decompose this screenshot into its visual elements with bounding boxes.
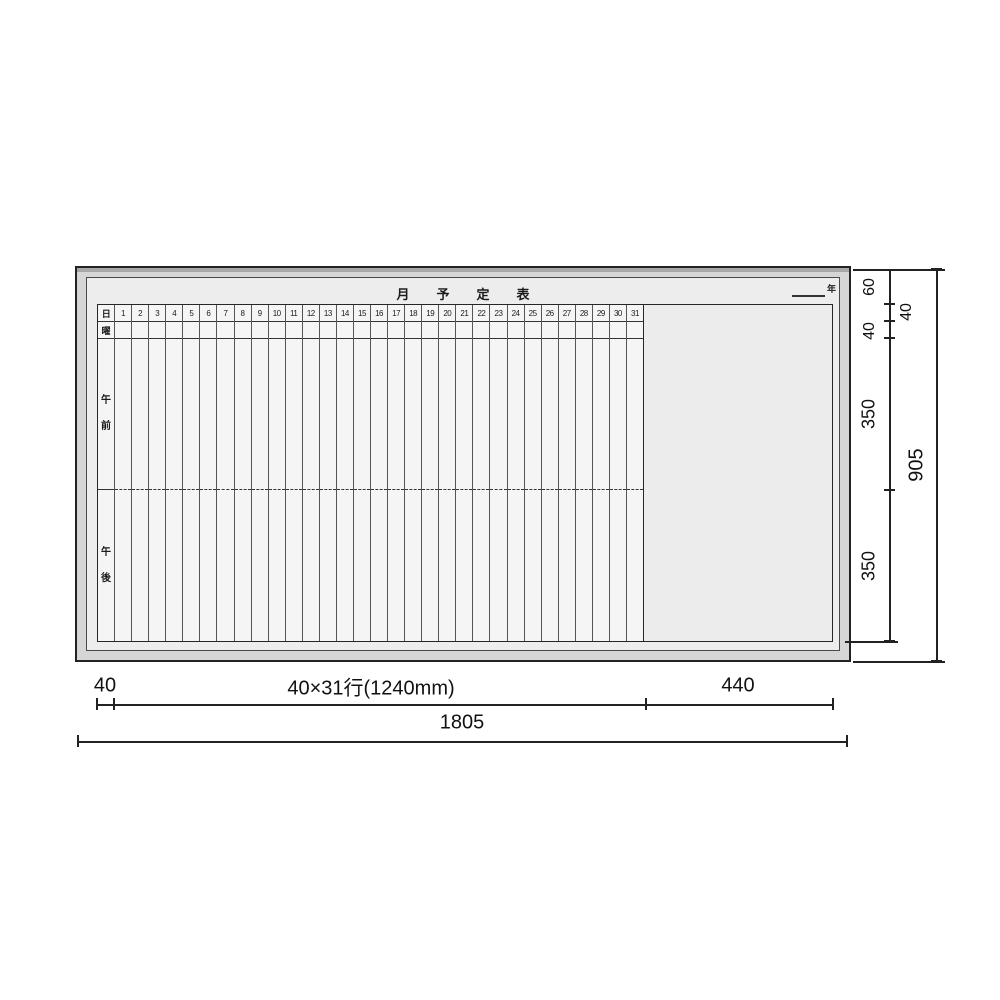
weekday-cell xyxy=(473,322,489,339)
weekday-cell xyxy=(525,322,541,339)
weekday-label-cell: 曜 xyxy=(98,322,114,339)
weekday-cell xyxy=(320,322,336,339)
afternoon-cell xyxy=(166,490,182,641)
dim-label-total-height: 905 xyxy=(906,448,929,481)
corner-header-cell: 日 xyxy=(98,305,114,322)
weekday-cell xyxy=(559,322,575,339)
dim-line-right-inner xyxy=(889,270,891,642)
morning-label-cell: 午 前 xyxy=(98,339,114,490)
weekday-cell xyxy=(217,322,233,339)
morning-cell xyxy=(525,339,541,490)
morning-cell xyxy=(405,339,421,490)
afternoon-cell xyxy=(132,490,148,641)
day-number-cell: 16 xyxy=(371,305,387,322)
morning-cell xyxy=(508,339,524,490)
weekday-cell xyxy=(439,322,455,339)
day-column: 28 xyxy=(576,305,593,641)
day-column: 8 xyxy=(235,305,252,641)
weekday-cell xyxy=(166,322,182,339)
dim-label-blank-width: 440 xyxy=(721,675,754,698)
weekday-cell xyxy=(593,322,609,339)
day-number-cell: 27 xyxy=(559,305,575,322)
day-number-cell: 20 xyxy=(439,305,455,322)
dim-tick xyxy=(931,660,942,662)
dim-tick xyxy=(96,698,98,710)
afternoon-cell xyxy=(559,490,575,641)
afternoon-cell xyxy=(252,490,268,641)
morning-cell xyxy=(559,339,575,490)
afternoon-cell xyxy=(422,490,438,641)
board-interior: 月予定表 年 日 曜 午 前 xyxy=(86,277,840,651)
weekday-cell xyxy=(405,322,421,339)
dim-line-bottom-inner xyxy=(96,704,833,706)
weekday-cell xyxy=(286,322,302,339)
day-column: 25 xyxy=(525,305,542,641)
day-column: 15 xyxy=(354,305,371,641)
day-column: 13 xyxy=(320,305,337,641)
morning-cell xyxy=(354,339,370,490)
afternoon-cell xyxy=(456,490,472,641)
day-number-cell: 6 xyxy=(200,305,216,322)
day-number-cell: 29 xyxy=(593,305,609,322)
dim-tick xyxy=(884,269,895,271)
weekday-cell xyxy=(115,322,131,339)
afternoon-cell xyxy=(439,490,455,641)
afternoon-label: 午 後 xyxy=(101,548,111,584)
day-column: 18 xyxy=(405,305,422,641)
weekday-cell xyxy=(456,322,472,339)
morning-label: 午 前 xyxy=(101,396,111,432)
day-number-cell: 30 xyxy=(610,305,626,322)
morning-cell xyxy=(610,339,626,490)
day-number-cell: 24 xyxy=(508,305,524,322)
dim-tick xyxy=(846,735,848,747)
morning-cell xyxy=(252,339,268,490)
morning-cell xyxy=(456,339,472,490)
weekday-cell xyxy=(132,322,148,339)
day-column: 21 xyxy=(456,305,473,641)
day-column: 19 xyxy=(422,305,439,641)
day-number-cell: 7 xyxy=(217,305,233,322)
weekday-cell xyxy=(627,322,643,339)
day-number-cell: 4 xyxy=(166,305,182,322)
day-number-cell: 13 xyxy=(320,305,336,322)
weekday-cell xyxy=(337,322,353,339)
day-column: 9 xyxy=(252,305,269,641)
day-number-cell: 15 xyxy=(354,305,370,322)
day-number-cell: 18 xyxy=(405,305,421,322)
year-field: 年 xyxy=(792,282,836,298)
day-column: 7 xyxy=(217,305,234,641)
morning-cell xyxy=(166,339,182,490)
day-number-cell: 28 xyxy=(576,305,592,322)
product-dimension-diagram: 月予定表 年 日 曜 午 前 xyxy=(0,0,1000,1000)
day-column: 5 xyxy=(183,305,200,641)
day-column: 27 xyxy=(559,305,576,641)
day-column: 31 xyxy=(627,305,643,641)
afternoon-cell xyxy=(303,490,319,641)
day-column: 12 xyxy=(303,305,320,641)
afternoon-cell xyxy=(371,490,387,641)
weekday-cell xyxy=(508,322,524,339)
afternoon-cell xyxy=(610,490,626,641)
weekday-cell xyxy=(303,322,319,339)
day-column: 6 xyxy=(200,305,217,641)
day-column: 17 xyxy=(388,305,405,641)
day-number-cell: 12 xyxy=(303,305,319,322)
morning-cell xyxy=(490,339,506,490)
dim-tick xyxy=(884,320,895,322)
day-column: 29 xyxy=(593,305,610,641)
dim-label-header-row-height: 40 xyxy=(898,303,916,321)
morning-cell xyxy=(269,339,285,490)
weekday-cell xyxy=(388,322,404,339)
dim-tick xyxy=(645,698,647,710)
weekday-cell xyxy=(490,322,506,339)
day-number-cell: 25 xyxy=(525,305,541,322)
dim-label-weekday-row-height: 40 xyxy=(861,322,879,340)
day-column: 10 xyxy=(269,305,286,641)
whiteboard-frame: 月予定表 年 日 曜 午 前 xyxy=(75,266,851,662)
blank-panel xyxy=(644,305,832,641)
dim-label-col-width: 40 xyxy=(94,675,116,698)
dim-line-bottom-total xyxy=(77,741,848,743)
day-number-cell: 14 xyxy=(337,305,353,322)
afternoon-cell xyxy=(525,490,541,641)
weekday-cell xyxy=(200,322,216,339)
morning-cell xyxy=(627,339,643,490)
afternoon-label-cell: 午 後 xyxy=(98,490,114,641)
afternoon-cell xyxy=(490,490,506,641)
morning-cell xyxy=(217,339,233,490)
dim-label-afternoon-height: 350 xyxy=(859,551,880,581)
morning-cell xyxy=(422,339,438,490)
day-column: 22 xyxy=(473,305,490,641)
afternoon-cell xyxy=(388,490,404,641)
morning-cell xyxy=(388,339,404,490)
year-underline xyxy=(792,295,825,297)
weekday-cell xyxy=(610,322,626,339)
afternoon-cell xyxy=(320,490,336,641)
morning-cell xyxy=(286,339,302,490)
day-number-cell: 9 xyxy=(252,305,268,322)
morning-cell xyxy=(149,339,165,490)
day-column: 2 xyxy=(132,305,149,641)
weekday-cell xyxy=(235,322,251,339)
morning-cell xyxy=(320,339,336,490)
day-column: 3 xyxy=(149,305,166,641)
afternoon-cell xyxy=(576,490,592,641)
day-number-cell: 21 xyxy=(456,305,472,322)
weekday-cell xyxy=(371,322,387,339)
dim-tick xyxy=(113,698,115,710)
afternoon-cell xyxy=(405,490,421,641)
year-label: 年 xyxy=(827,282,836,295)
day-number-cell: 10 xyxy=(269,305,285,322)
morning-cell xyxy=(593,339,609,490)
afternoon-cell xyxy=(217,490,233,641)
day-number-cell: 17 xyxy=(388,305,404,322)
writing-surface: 日 曜 午 前 午 後 xyxy=(97,304,833,642)
day-column: 11 xyxy=(286,305,303,641)
afternoon-cell xyxy=(354,490,370,641)
dim-tick xyxy=(931,268,942,270)
day-column: 30 xyxy=(610,305,627,641)
weekday-cell xyxy=(252,322,268,339)
day-number-cell: 31 xyxy=(627,305,643,322)
weekday-cell xyxy=(576,322,592,339)
day-number-cell: 11 xyxy=(286,305,302,322)
day-column: 23 xyxy=(490,305,507,641)
dim-tick xyxy=(884,489,895,491)
morning-cell xyxy=(235,339,251,490)
day-column: 4 xyxy=(166,305,183,641)
dim-tick xyxy=(832,698,834,710)
afternoon-cell xyxy=(542,490,558,641)
afternoon-cell xyxy=(286,490,302,641)
day-column: 24 xyxy=(508,305,525,641)
dim-tick xyxy=(884,337,895,339)
afternoon-cell xyxy=(337,490,353,641)
morning-cell xyxy=(303,339,319,490)
day-column: 20 xyxy=(439,305,456,641)
afternoon-cell xyxy=(200,490,216,641)
weekday-cell xyxy=(149,322,165,339)
label-column: 日 曜 午 前 午 後 xyxy=(98,305,115,641)
day-number-cell: 19 xyxy=(422,305,438,322)
dim-label-grid-width: 40×31行(1240mm) xyxy=(287,672,454,701)
morning-cell xyxy=(132,339,148,490)
dim-label-title-row-height: 60 xyxy=(861,278,879,296)
calendar-grid: 日 曜 午 前 午 後 xyxy=(98,305,644,641)
dim-label-total-width: 1805 xyxy=(440,712,485,735)
day-column: 1 xyxy=(115,305,132,641)
weekday-cell xyxy=(354,322,370,339)
morning-cell xyxy=(183,339,199,490)
day-number-cell: 23 xyxy=(490,305,506,322)
day-number-cell: 3 xyxy=(149,305,165,322)
afternoon-cell xyxy=(627,490,643,641)
morning-cell xyxy=(439,339,455,490)
afternoon-cell xyxy=(115,490,131,641)
day-number-cell: 8 xyxy=(235,305,251,322)
day-column: 26 xyxy=(542,305,559,641)
day-number-cell: 5 xyxy=(183,305,199,322)
afternoon-cell xyxy=(183,490,199,641)
morning-cell xyxy=(473,339,489,490)
dim-line-right-outer xyxy=(936,268,938,662)
afternoon-cell xyxy=(508,490,524,641)
weekday-cell xyxy=(542,322,558,339)
day-column: 16 xyxy=(371,305,388,641)
day-number-cell: 1 xyxy=(115,305,131,322)
day-number-cell: 22 xyxy=(473,305,489,322)
afternoon-cell xyxy=(593,490,609,641)
dim-tick xyxy=(77,735,79,747)
board-title: 月予定表 xyxy=(369,284,556,303)
afternoon-cell xyxy=(149,490,165,641)
afternoon-cell xyxy=(473,490,489,641)
dim-label-morning-height: 350 xyxy=(859,399,880,429)
morning-cell xyxy=(200,339,216,490)
morning-cell xyxy=(542,339,558,490)
morning-cell xyxy=(337,339,353,490)
dim-tick xyxy=(884,303,895,305)
day-number-cell: 26 xyxy=(542,305,558,322)
day-number-cell: 2 xyxy=(132,305,148,322)
afternoon-cell xyxy=(269,490,285,641)
weekday-cell xyxy=(269,322,285,339)
morning-cell xyxy=(115,339,131,490)
dim-tick xyxy=(884,640,895,642)
weekday-cell xyxy=(422,322,438,339)
afternoon-cell xyxy=(235,490,251,641)
day-column: 14 xyxy=(337,305,354,641)
weekday-cell xyxy=(183,322,199,339)
morning-cell xyxy=(576,339,592,490)
morning-cell xyxy=(371,339,387,490)
